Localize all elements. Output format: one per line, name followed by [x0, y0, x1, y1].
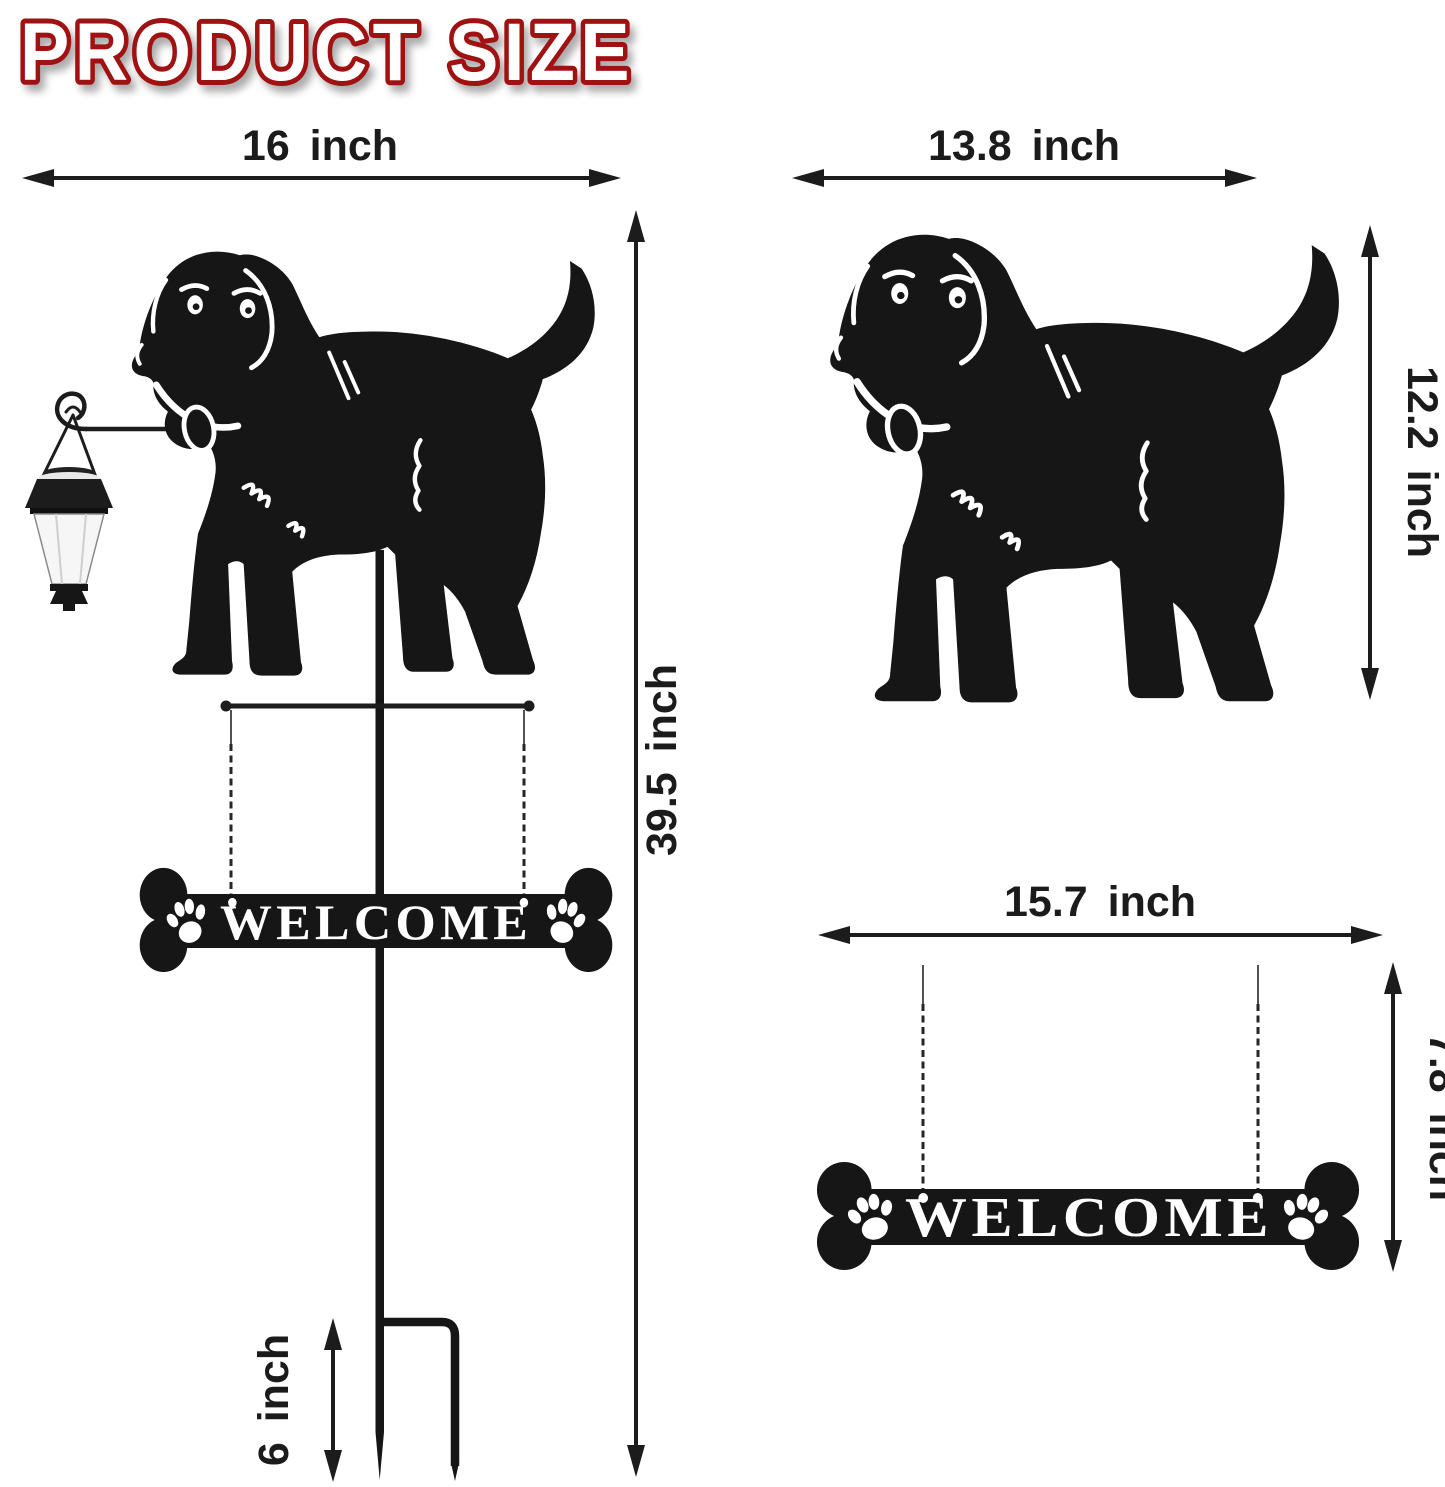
dimension-label: 39.5 inch [638, 664, 686, 856]
dimension-label: 7.8 inch [1420, 1033, 1445, 1201]
dimension-label: 13.8 inch [928, 122, 1120, 170]
lantern-glass-body [34, 514, 104, 584]
product-size-diagram: PRODUCT SIZE WELCOME [0, 0, 1445, 1487]
dimension-dog-height: 12.2 inch [1361, 225, 1445, 700]
dimension-left-height: 39.5 inch [627, 210, 686, 1477]
dimension-label: 6 inch [250, 1334, 298, 1466]
dog-silhouette-left [132, 252, 595, 676]
dimension-label: 15.7 inch [1004, 878, 1196, 926]
welcome-sign-text-left: WELCOME [220, 894, 532, 950]
dimension-sign-width: 15.7 inch [818, 878, 1383, 944]
dimension-sign-height: 7.8 inch [1384, 962, 1445, 1272]
ground-stake-prong [382, 1322, 455, 1466]
dimension-stake-height: 6 inch [250, 1318, 342, 1482]
dimension-dog-width: 13.8 inch [792, 122, 1257, 187]
lantern-hook [57, 394, 86, 429]
welcome-sign-text-right: WELCOME [905, 1187, 1273, 1249]
solar-lantern [25, 407, 113, 611]
diagram-canvas: PRODUCT SIZE WELCOME [0, 0, 1445, 1487]
sign-chain [923, 965, 1258, 1192]
lantern-finial [50, 591, 88, 604]
dimension-label: 12.2 inch [1398, 366, 1445, 558]
page-title: PRODUCT SIZE [20, 7, 635, 98]
dimension-label: 16 inch [242, 122, 398, 170]
dimension-left-width: 16 inch [22, 122, 621, 187]
ground-stake-pole [376, 550, 460, 1481]
lantern-cap [25, 479, 113, 508]
dog-silhouette-right [830, 235, 1339, 703]
